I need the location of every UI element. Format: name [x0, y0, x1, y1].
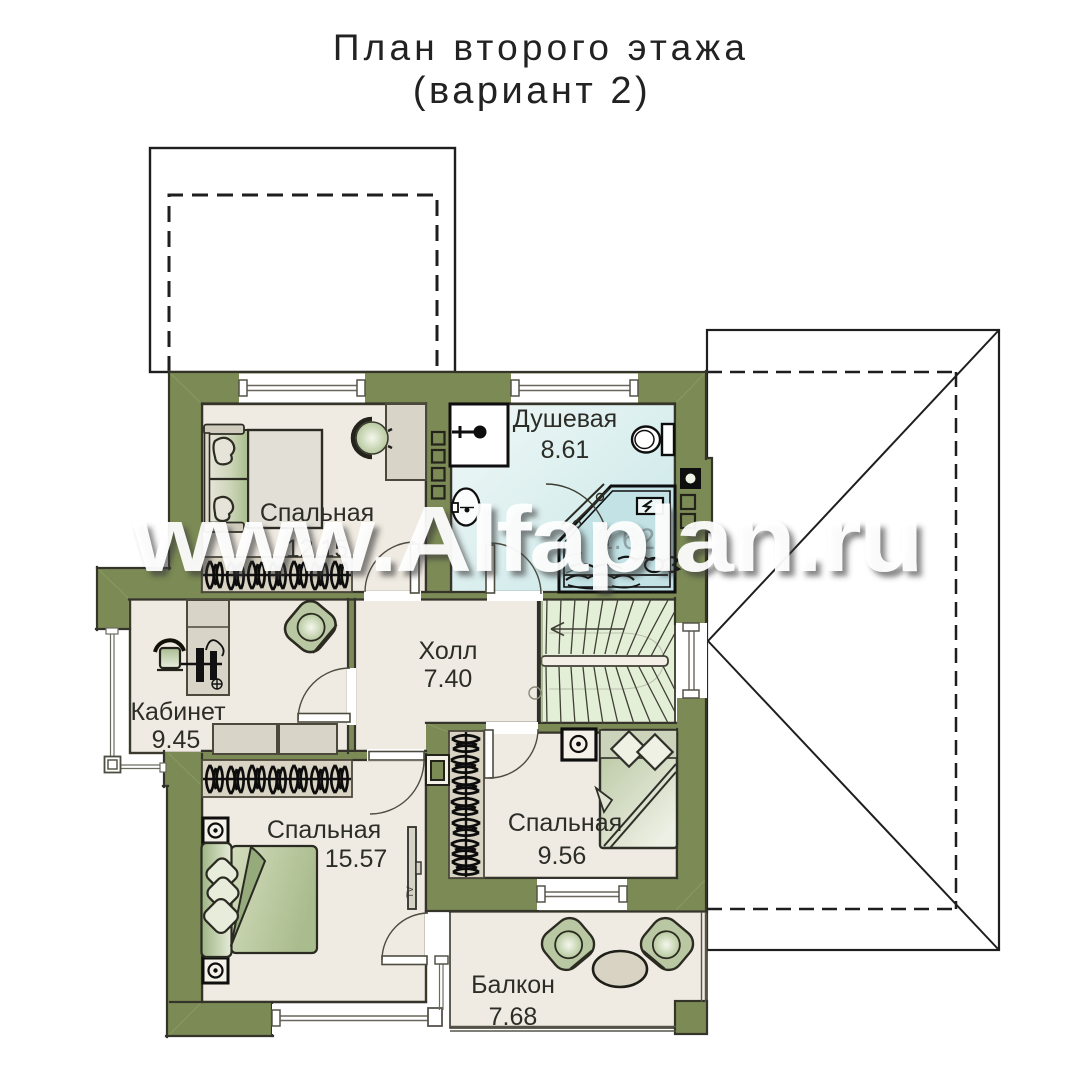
svg-text:Кабинет: Кабинет — [130, 698, 226, 726]
svg-text:9.45: 9.45 — [152, 726, 201, 754]
svg-text:TV: TV — [405, 886, 415, 898]
svg-text:Спальная: Спальная — [267, 816, 381, 844]
svg-text:8.61: 8.61 — [541, 436, 590, 464]
svg-text:www.Alfaplan.ru: www.Alfaplan.ru — [132, 488, 922, 592]
svg-text:Душевая: Душевая — [513, 405, 617, 433]
svg-text:План второго этажа: План второго этажа — [333, 27, 749, 68]
svg-text:Балкон: Балкон — [471, 971, 555, 999]
svg-text:Спальная: Спальная — [508, 809, 622, 837]
svg-text:9.56: 9.56 — [538, 842, 587, 870]
svg-text:7.40: 7.40 — [424, 665, 473, 693]
svg-text:Холл: Холл — [419, 637, 478, 665]
svg-text:15.57: 15.57 — [325, 845, 388, 873]
svg-text:(вариант 2): (вариант 2) — [413, 70, 651, 112]
